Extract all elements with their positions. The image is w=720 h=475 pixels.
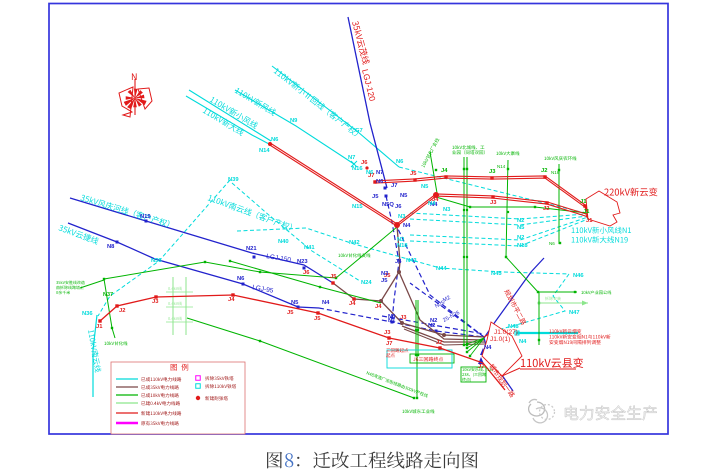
svg-text:N41: N41 bbox=[304, 245, 315, 251]
svg-text:N19: N19 bbox=[140, 214, 151, 220]
svg-text:N15: N15 bbox=[352, 204, 363, 210]
svg-text:N42: N42 bbox=[349, 240, 360, 246]
svg-text:J6: J6 bbox=[395, 204, 402, 210]
svg-text:J4: J4 bbox=[395, 259, 402, 265]
svg-text:N4: N4 bbox=[403, 223, 411, 229]
svg-text:N45: N45 bbox=[491, 271, 502, 277]
svg-text:N4: N4 bbox=[322, 300, 330, 306]
svg-text:N23: N23 bbox=[297, 259, 308, 265]
svg-text:J7: J7 bbox=[386, 341, 392, 347]
svg-text:J7: J7 bbox=[478, 364, 484, 370]
svg-text:J2: J2 bbox=[119, 308, 125, 314]
svg-text:J7: J7 bbox=[391, 183, 397, 189]
svg-text:N39: N39 bbox=[228, 177, 239, 183]
svg-text:N4: N4 bbox=[519, 339, 527, 345]
svg-text:J3: J3 bbox=[400, 315, 407, 321]
svg-text:N5: N5 bbox=[400, 193, 408, 199]
svg-text:N6: N6 bbox=[549, 241, 555, 246]
svg-text:J4: J4 bbox=[375, 304, 382, 310]
svg-text:N2: N2 bbox=[517, 235, 524, 241]
svg-text:J2: J2 bbox=[541, 168, 547, 174]
svg-text:N43: N43 bbox=[406, 258, 417, 264]
svg-text:N2: N2 bbox=[517, 218, 524, 224]
svg-text:N3: N3 bbox=[443, 207, 451, 213]
svg-text:J1: J1 bbox=[586, 218, 593, 224]
svg-text:LGJ-95: LGJ-95 bbox=[252, 284, 275, 295]
svg-text:G7: G7 bbox=[355, 128, 363, 134]
svg-text:N38: N38 bbox=[151, 258, 162, 264]
svg-text:N9: N9 bbox=[290, 118, 298, 124]
svg-text:J5: J5 bbox=[314, 316, 321, 322]
svg-text:J3: J3 bbox=[384, 330, 391, 336]
svg-text:J5: J5 bbox=[381, 278, 388, 284]
svg-text:N47: N47 bbox=[569, 310, 580, 316]
svg-text:J4: J4 bbox=[228, 297, 235, 303]
svg-text:N48: N48 bbox=[508, 324, 519, 330]
svg-text:N44: N44 bbox=[436, 266, 447, 272]
svg-text:N2: N2 bbox=[430, 318, 437, 324]
svg-text:J3: J3 bbox=[152, 299, 159, 305]
svg-text:J4: J4 bbox=[441, 168, 448, 174]
svg-text:J6: J6 bbox=[303, 270, 310, 276]
svg-text:N46: N46 bbox=[573, 273, 584, 279]
svg-text:N8: N8 bbox=[107, 244, 115, 250]
svg-text:N18: N18 bbox=[397, 243, 408, 249]
svg-text:J2: J2 bbox=[543, 206, 549, 212]
svg-text:N5: N5 bbox=[291, 300, 299, 306]
svg-text:J1: J1 bbox=[583, 209, 590, 215]
svg-text:N5Q: N5Q bbox=[382, 202, 394, 208]
svg-text:J2: J2 bbox=[436, 340, 442, 346]
svg-text:N4: N4 bbox=[428, 201, 436, 207]
svg-text:N16: N16 bbox=[352, 166, 363, 172]
svg-text:LGJ-150: LGJ-150 bbox=[266, 253, 292, 264]
svg-text:N6: N6 bbox=[237, 276, 245, 282]
svg-text:N6: N6 bbox=[376, 179, 384, 185]
svg-text:J1.0(1): J1.0(1) bbox=[490, 336, 510, 343]
svg-text:J1: J1 bbox=[96, 324, 103, 330]
svg-text:N16: N16 bbox=[551, 170, 560, 175]
svg-text:N36: N36 bbox=[82, 311, 93, 317]
svg-text:N37: N37 bbox=[103, 292, 113, 298]
svg-text:J3: J3 bbox=[489, 169, 496, 175]
svg-text:N6: N6 bbox=[396, 159, 404, 165]
svg-text:J5: J5 bbox=[372, 194, 379, 200]
svg-text:J3: J3 bbox=[490, 200, 497, 206]
svg-text:N24: N24 bbox=[361, 280, 372, 286]
svg-text:J1: J1 bbox=[580, 199, 587, 205]
svg-text:J5: J5 bbox=[330, 274, 337, 280]
svg-text:N14: N14 bbox=[497, 164, 506, 169]
svg-text:N7: N7 bbox=[376, 170, 383, 176]
svg-text:N1: N1 bbox=[388, 318, 396, 324]
svg-text:N6: N6 bbox=[366, 170, 374, 176]
svg-text:N7: N7 bbox=[348, 155, 355, 161]
svg-text:N6: N6 bbox=[271, 137, 279, 143]
svg-text:N18: N18 bbox=[517, 243, 528, 249]
svg-text:N40: N40 bbox=[278, 239, 289, 245]
svg-text:J4: J4 bbox=[349, 301, 356, 307]
svg-text:J5: J5 bbox=[410, 171, 417, 177]
svg-text:N21: N21 bbox=[246, 246, 257, 252]
svg-text:N5: N5 bbox=[517, 225, 525, 231]
svg-text:N5: N5 bbox=[421, 184, 429, 190]
svg-text:J1.0(27): J1.0(27) bbox=[494, 329, 518, 336]
svg-text:N3: N3 bbox=[398, 214, 406, 220]
svg-text:J5: J5 bbox=[287, 310, 294, 316]
svg-text:N3: N3 bbox=[381, 271, 389, 277]
svg-text:N4: N4 bbox=[484, 345, 492, 351]
svg-text:N14: N14 bbox=[259, 148, 270, 154]
